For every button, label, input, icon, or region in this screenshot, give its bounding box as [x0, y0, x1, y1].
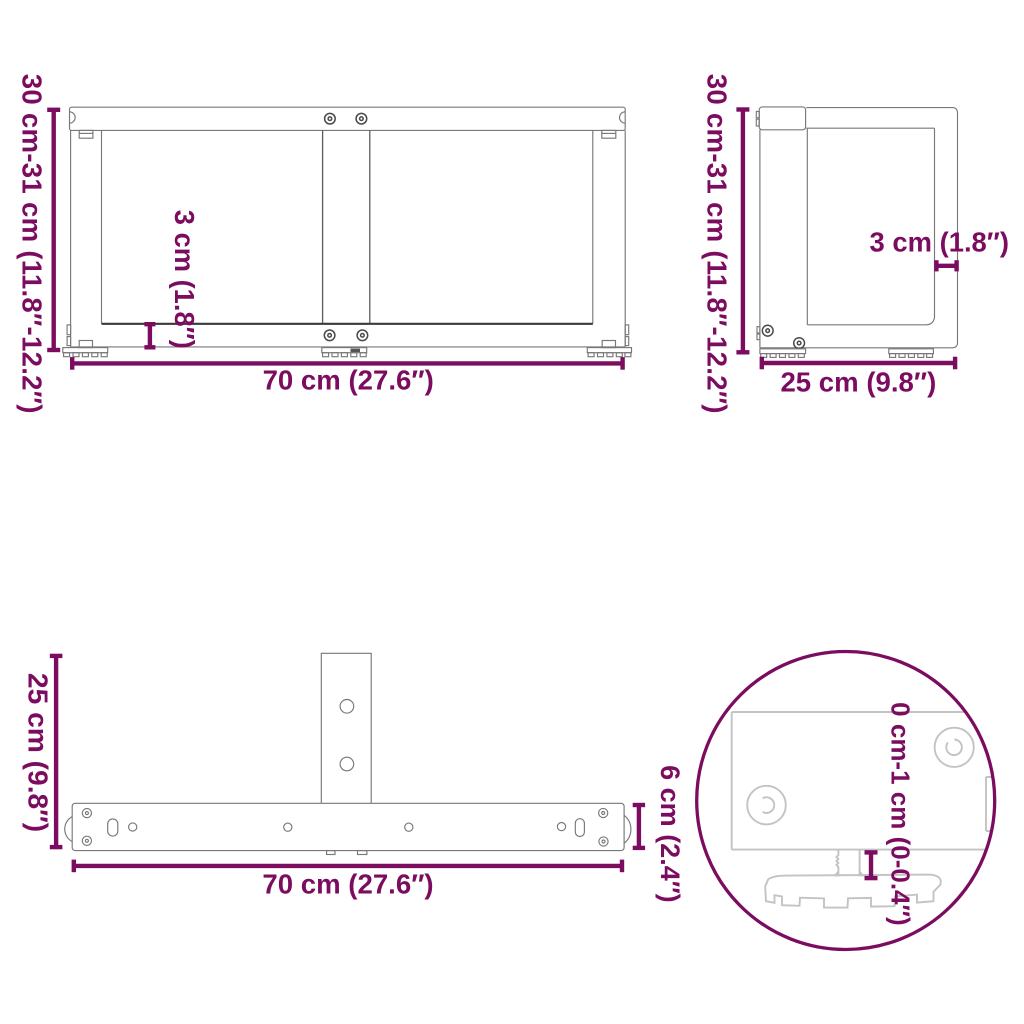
- svg-text:25 cm (9.8″): 25 cm (9.8″): [780, 366, 936, 397]
- svg-text:70 cm (27.6″): 70 cm (27.6″): [262, 868, 433, 899]
- svg-text:3 cm (1.8″): 3 cm (1.8″): [870, 227, 1009, 258]
- svg-text:70 cm (27.6″): 70 cm (27.6″): [263, 365, 434, 396]
- svg-text:25 cm (9.8″): 25 cm (9.8″): [22, 673, 54, 832]
- svg-text:30 cm-31 cm (11.8″-12.2″): 30 cm-31 cm (11.8″-12.2″): [702, 74, 733, 414]
- svg-text:30 cm-31 cm (11.8″-12.2″): 30 cm-31 cm (11.8″-12.2″): [17, 74, 48, 414]
- svg-text:6 cm (2.4″): 6 cm (2.4″): [655, 765, 685, 903]
- svg-text:0 cm-1 cm (0-0.4″): 0 cm-1 cm (0-0.4″): [886, 702, 916, 925]
- svg-text:3 cm (1.8″): 3 cm (1.8″): [169, 210, 200, 349]
